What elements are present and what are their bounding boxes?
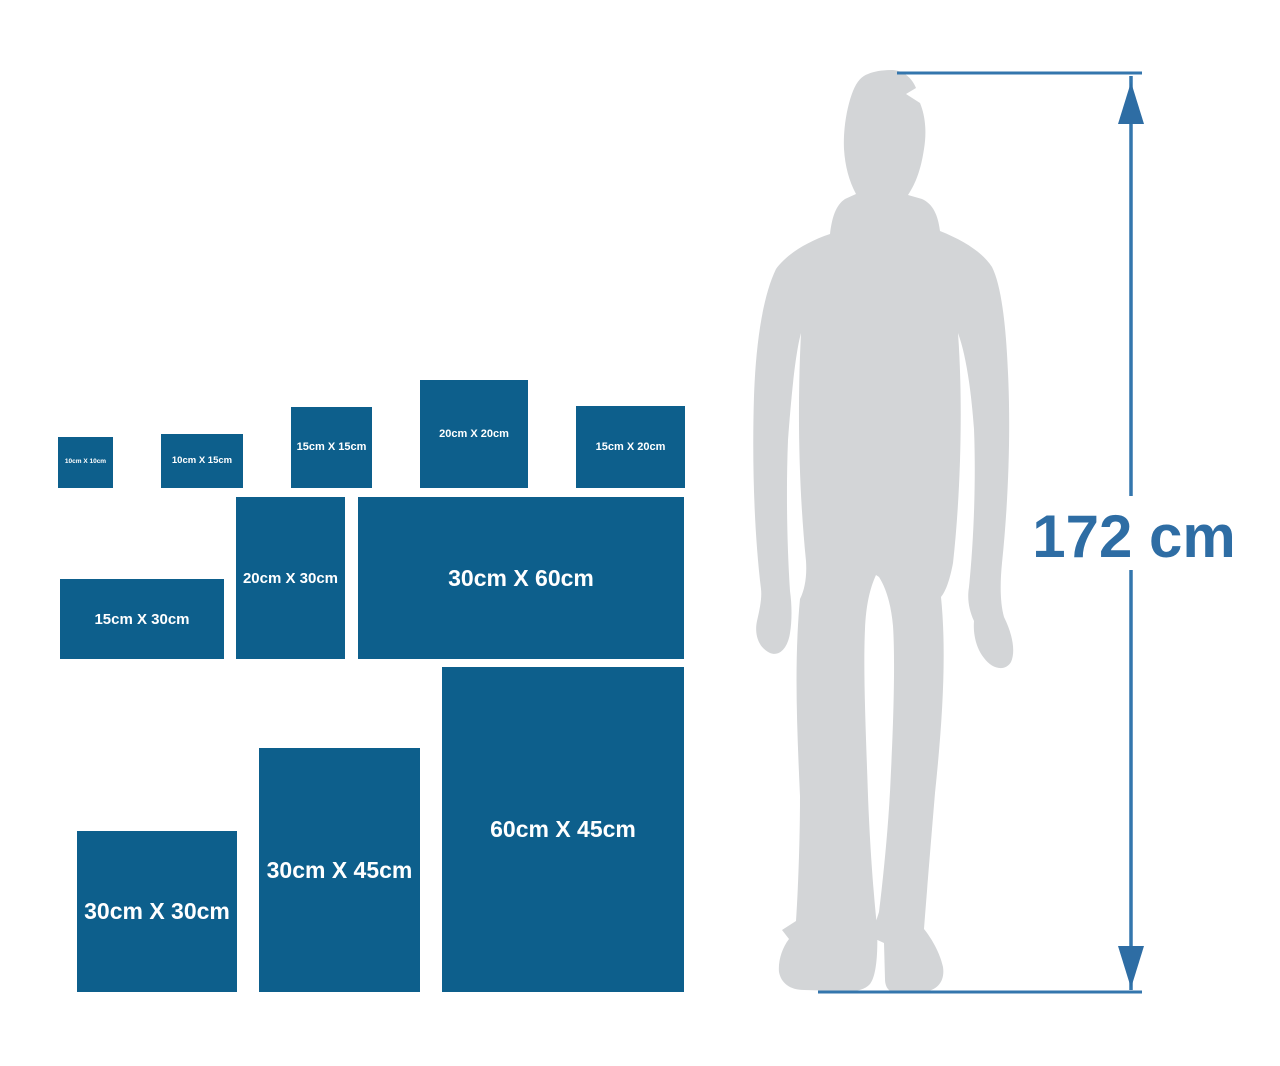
figure-graphic: 172 cm — [0, 0, 1280, 1066]
arrow-up-icon — [1118, 82, 1144, 124]
size-comparison-infographic: 10cm X 10cm 10cm X 15cm 15cm X 15cm 20cm… — [0, 0, 1280, 1066]
height-label: 172 cm — [1032, 503, 1236, 570]
person-silhouette — [753, 70, 1013, 993]
arrow-down-icon — [1118, 946, 1144, 988]
